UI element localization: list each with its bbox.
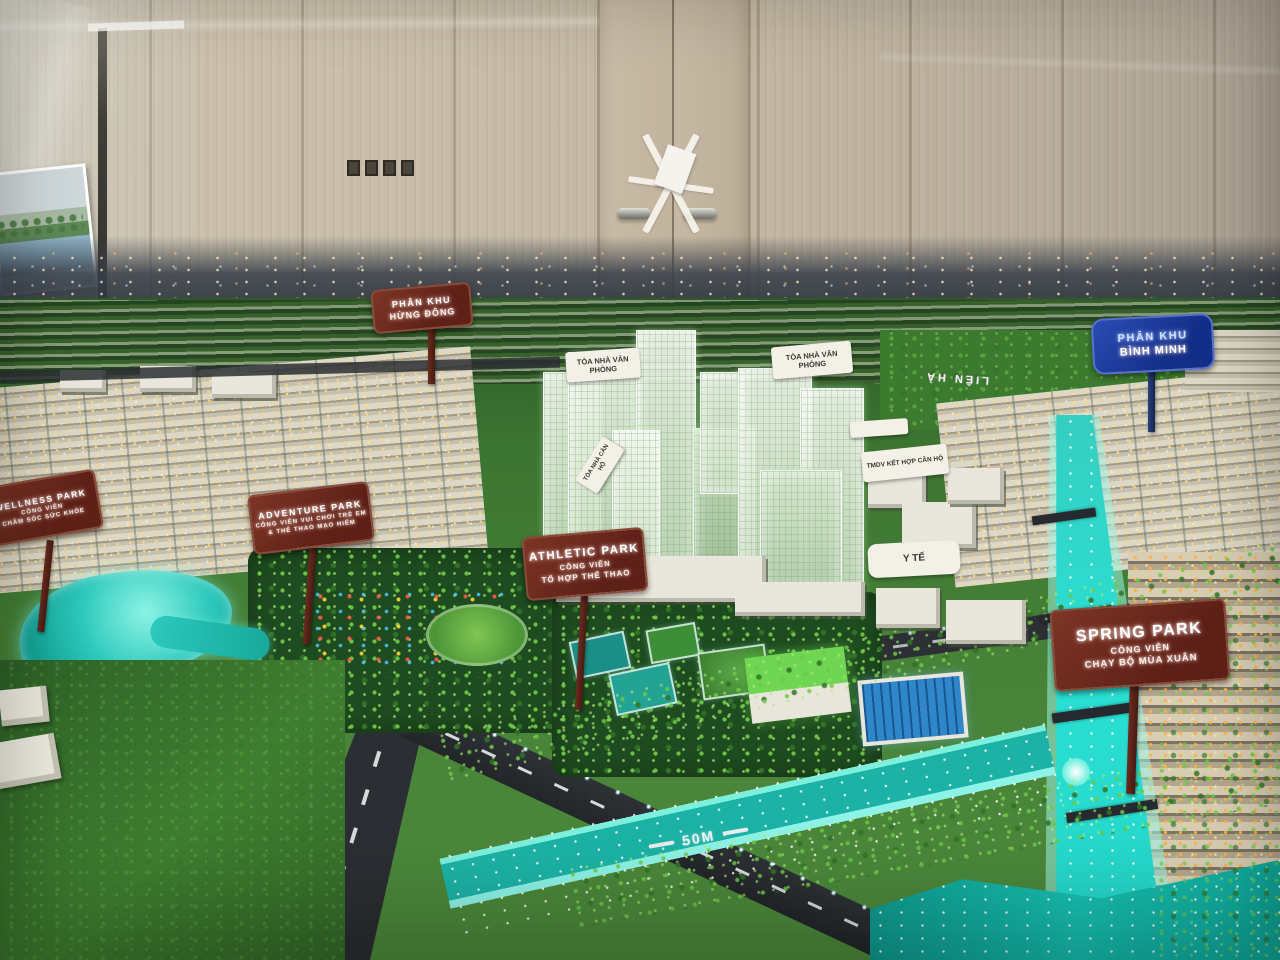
sign-hung-dong: PHÂN KHU HỪNG ĐÔNG [370,282,473,335]
empty-green-field [0,660,345,960]
office-tower-1-tag: TÒA NHÀ VĂN PHÒNG [565,347,641,382]
glass-tower [760,470,842,592]
sign-post [428,322,435,384]
wall-outlet [401,160,414,176]
sign-line: CHẠY BỘ MÙA XUÂN [1084,652,1198,671]
wall-outlet [365,160,378,176]
sign-line: TỔ HỢP THỂ THAO [541,568,631,585]
tower-facade-grid [761,471,841,591]
mid-rise-block [876,588,940,628]
road-dash [648,840,674,848]
sign-line: BÌNH MINH [1120,343,1188,358]
showroom-model-photo: LIÊN HÀ 50M TÒA NHÀ VĂN PHÒNG TÒA NHÀ VĂ… [0,0,1280,960]
field-trees [0,660,345,960]
medical-tag: Y TẾ [867,540,961,579]
wall-outlet [383,160,396,176]
oval-lawn [426,604,528,666]
road-dash [723,827,749,835]
sign-post [1148,368,1155,432]
door-handle-left [617,208,651,219]
sign-line: SPRING PARK [1075,619,1202,646]
tower-podium [735,582,865,616]
sign-binh-minh: PHÂN KHU BÌNH MINH [1091,313,1216,375]
mid-rise-block [946,600,1026,644]
mid-rise-block [948,468,1004,504]
sign-line: PHÂN KHU [1117,329,1188,345]
sign-athletic-park: ATHLETIC PARK CÔNG VIÊN TỔ HỢP THỂ THAO [521,527,648,601]
model-foam-box [0,686,50,727]
sign-spring-park: SPRING PARK CÔNG VIÊN CHẠY BỘ MÙA XUÂN [1049,598,1230,692]
wall-outlet [347,160,360,176]
